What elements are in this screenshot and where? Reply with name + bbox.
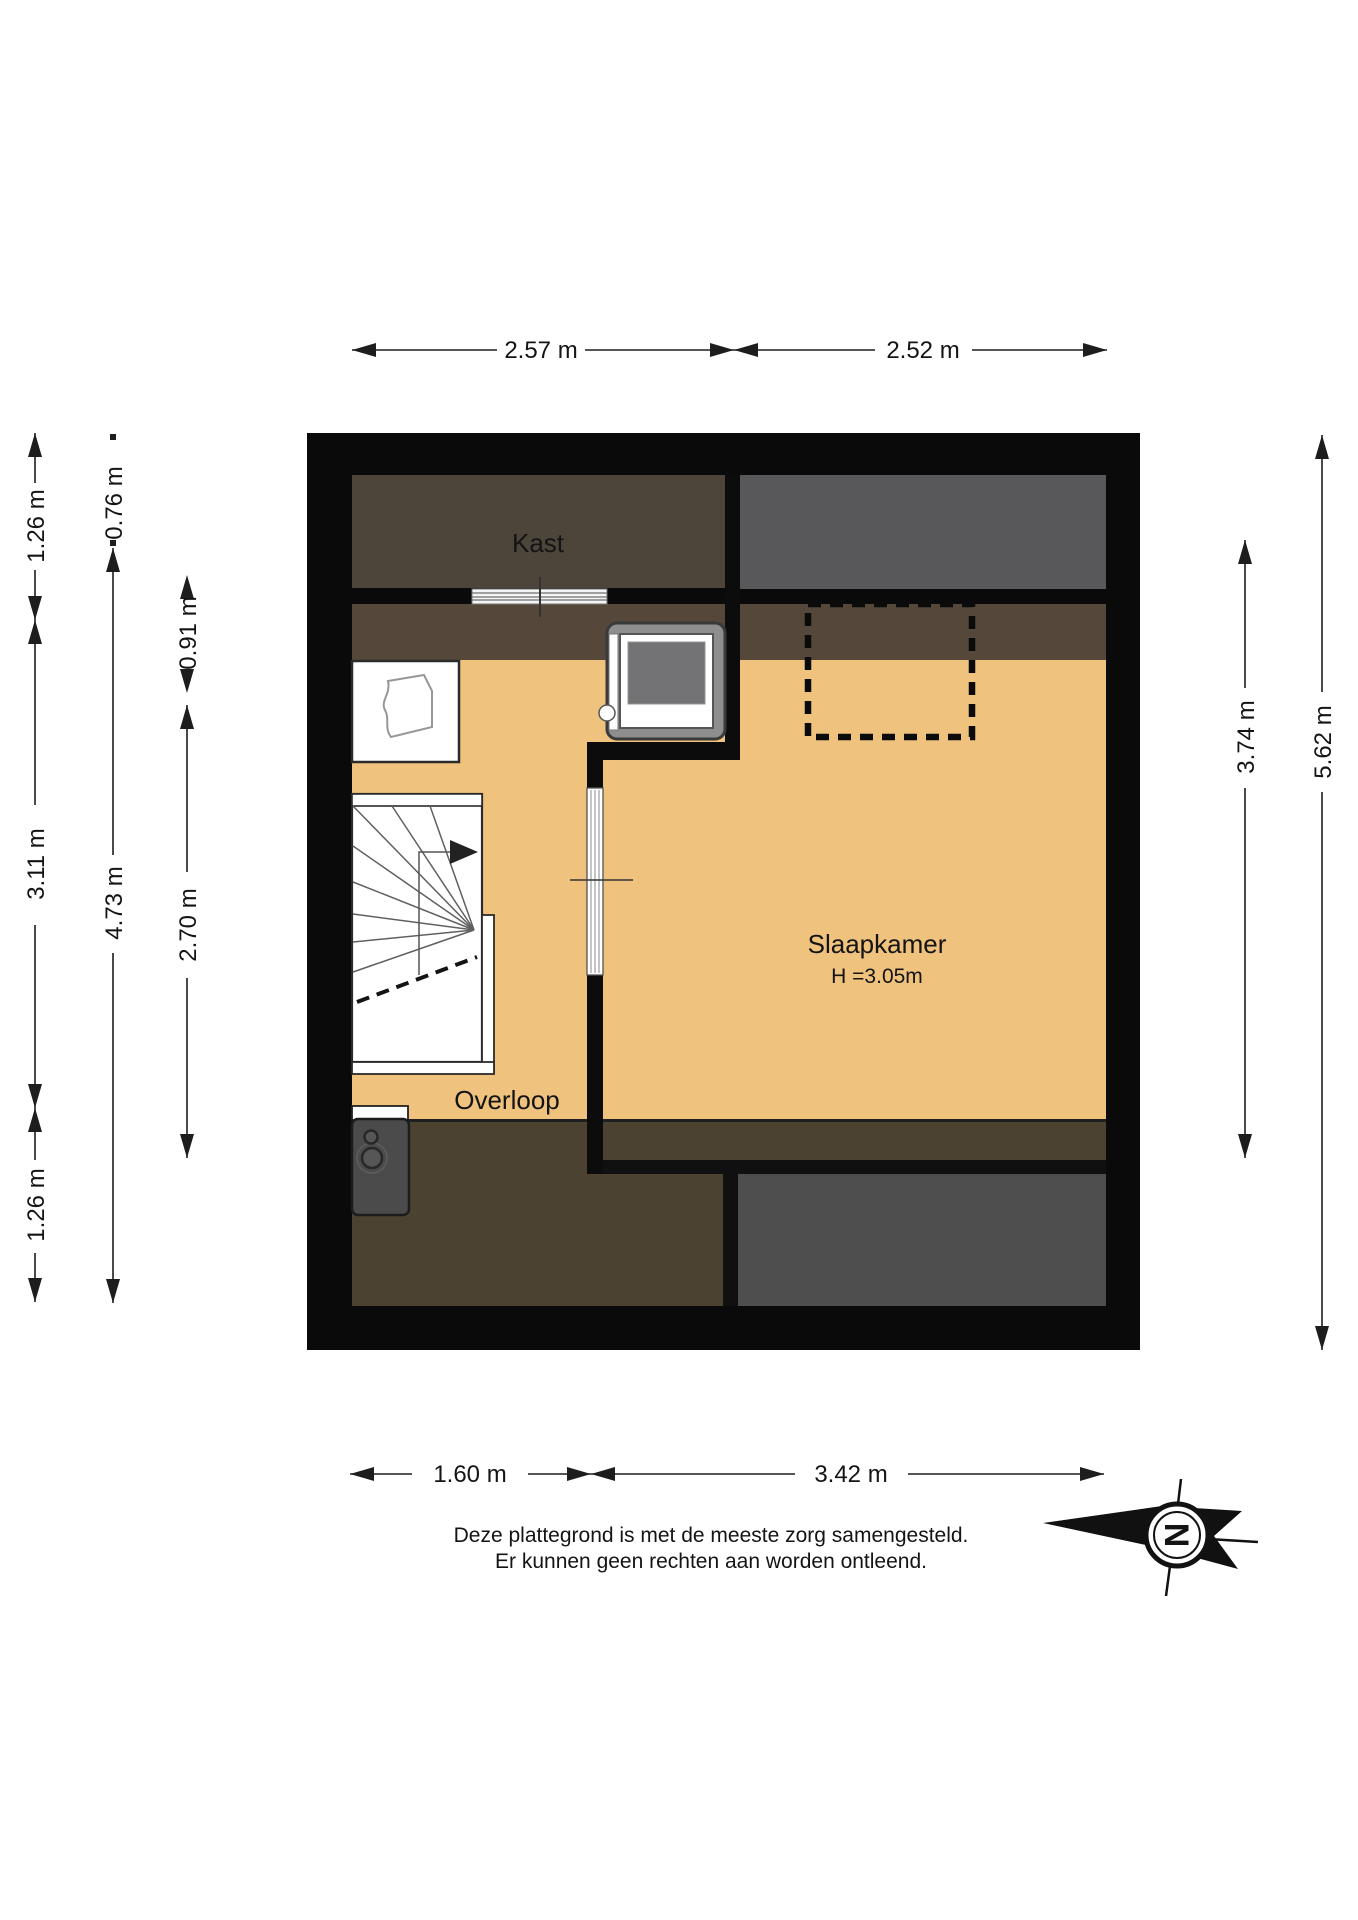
disclaimer-line-1: Deze plattegrond is met de meeste zorg s…: [454, 1524, 969, 1547]
staircase: [352, 794, 494, 1074]
dimension-top-1: 2.57 m: [352, 337, 734, 364]
floor-plan: Kast Slaapkamer H =3.05m Overloop: [307, 433, 1140, 1350]
kast-label: Kast: [512, 528, 565, 558]
dim-top-2-label: 2.52 m: [886, 337, 959, 364]
roof-area-top-right: [740, 475, 1106, 589]
dim-left-middle-1-label: 0.76 m: [101, 466, 128, 539]
slaapkamer-height-label: H =3.05m: [831, 965, 923, 988]
dimension-right-inner: 3.74 m: [1233, 540, 1260, 1158]
wall-below-appliance: [587, 742, 740, 760]
dimension-top-2: 2.52 m: [734, 337, 1107, 364]
dimension-left-middle: 0.76 m 4.73 m: [101, 434, 128, 1303]
dim-bottom-1-label: 1.60 m: [433, 1461, 506, 1488]
wall-band-lower: [587, 1160, 1106, 1174]
slaapkamer-label: Slaapkamer: [808, 929, 947, 959]
dimension-left-outer: 1.26 m 3.11 m 1.26 m: [23, 433, 50, 1302]
floorplan-canvas: Kast Slaapkamer H =3.05m Overloop 2.57 m…: [0, 0, 1358, 1920]
overloop-label: Overloop: [454, 1085, 560, 1115]
floorplan-page: Kast Slaapkamer H =3.05m Overloop 2.57 m…: [0, 0, 1358, 1920]
dimension-left-inner: 0.91 m 2.70 m: [175, 575, 202, 1158]
dimension-bottom-2: 3.42 m: [591, 1461, 1104, 1488]
compass-north-icon: N: [1043, 1479, 1258, 1596]
compass-letter: N: [1157, 1523, 1195, 1548]
boiler-icon: [352, 1106, 409, 1215]
wall-bottom-vertical: [723, 1174, 738, 1306]
wall-door-bottom: [587, 975, 603, 1174]
disclaimer-line-2: Er kunnen geen rechten aan worden ontlee…: [495, 1550, 927, 1573]
dimension-right-outer: 5.62 m: [1310, 435, 1337, 1350]
washing-machine-icon: [599, 623, 725, 739]
floor-edge-line: [352, 1119, 1106, 1122]
niche-box: [352, 661, 459, 762]
dim-left-inner-1-label: 0.91 m: [175, 596, 202, 669]
dim-left-outer-3-label: 1.26 m: [23, 1168, 50, 1241]
stair-newel: [482, 915, 494, 1072]
wall-kast-right: [725, 475, 740, 760]
dim-left-middle-2-label: 4.73 m: [101, 866, 128, 939]
roof-area-bottom-right: [738, 1174, 1106, 1306]
stair-sill: [352, 1062, 494, 1074]
dim-left-outer-1-label: 1.26 m: [23, 489, 50, 562]
dim-left-inner-2-label: 2.70 m: [175, 888, 202, 961]
dim-right-1-label: 3.74 m: [1233, 700, 1260, 773]
dim-right-2-label: 5.62 m: [1310, 705, 1337, 778]
dim-bottom-2-label: 3.42 m: [814, 1461, 887, 1488]
wall-door-top: [587, 760, 603, 790]
dim-left-outer-2-label: 3.11 m: [23, 828, 50, 900]
dimension-bottom-1: 1.60 m: [350, 1461, 591, 1488]
dim-top-1-label: 2.57 m: [504, 337, 577, 364]
curtain-symbol: [384, 675, 432, 737]
disclaimer: Deze plattegrond is met de meeste zorg s…: [454, 1524, 969, 1573]
